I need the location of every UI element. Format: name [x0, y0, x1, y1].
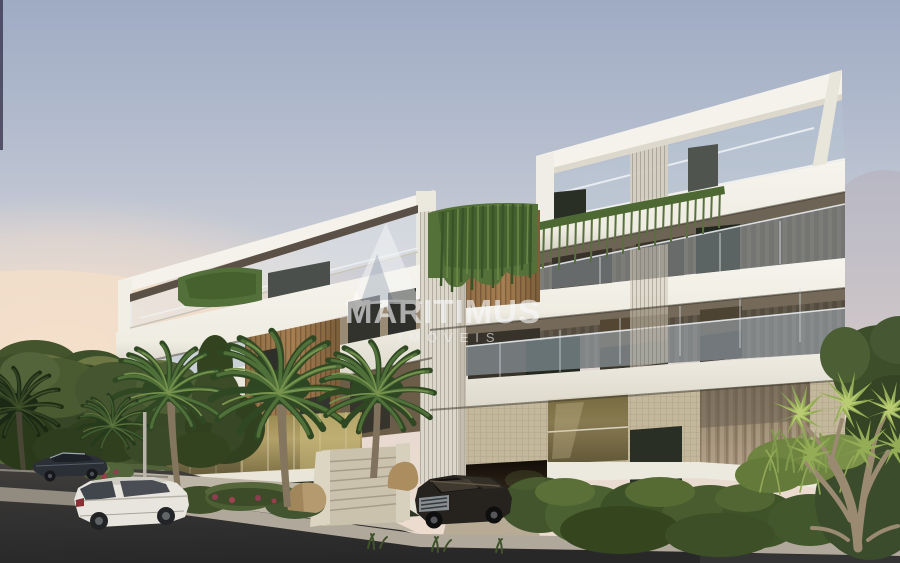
svg-text:MARITIMUS: MARITIMUS — [345, 293, 541, 330]
svg-text:IMÓVEIS: IMÓVEIS — [398, 330, 501, 345]
